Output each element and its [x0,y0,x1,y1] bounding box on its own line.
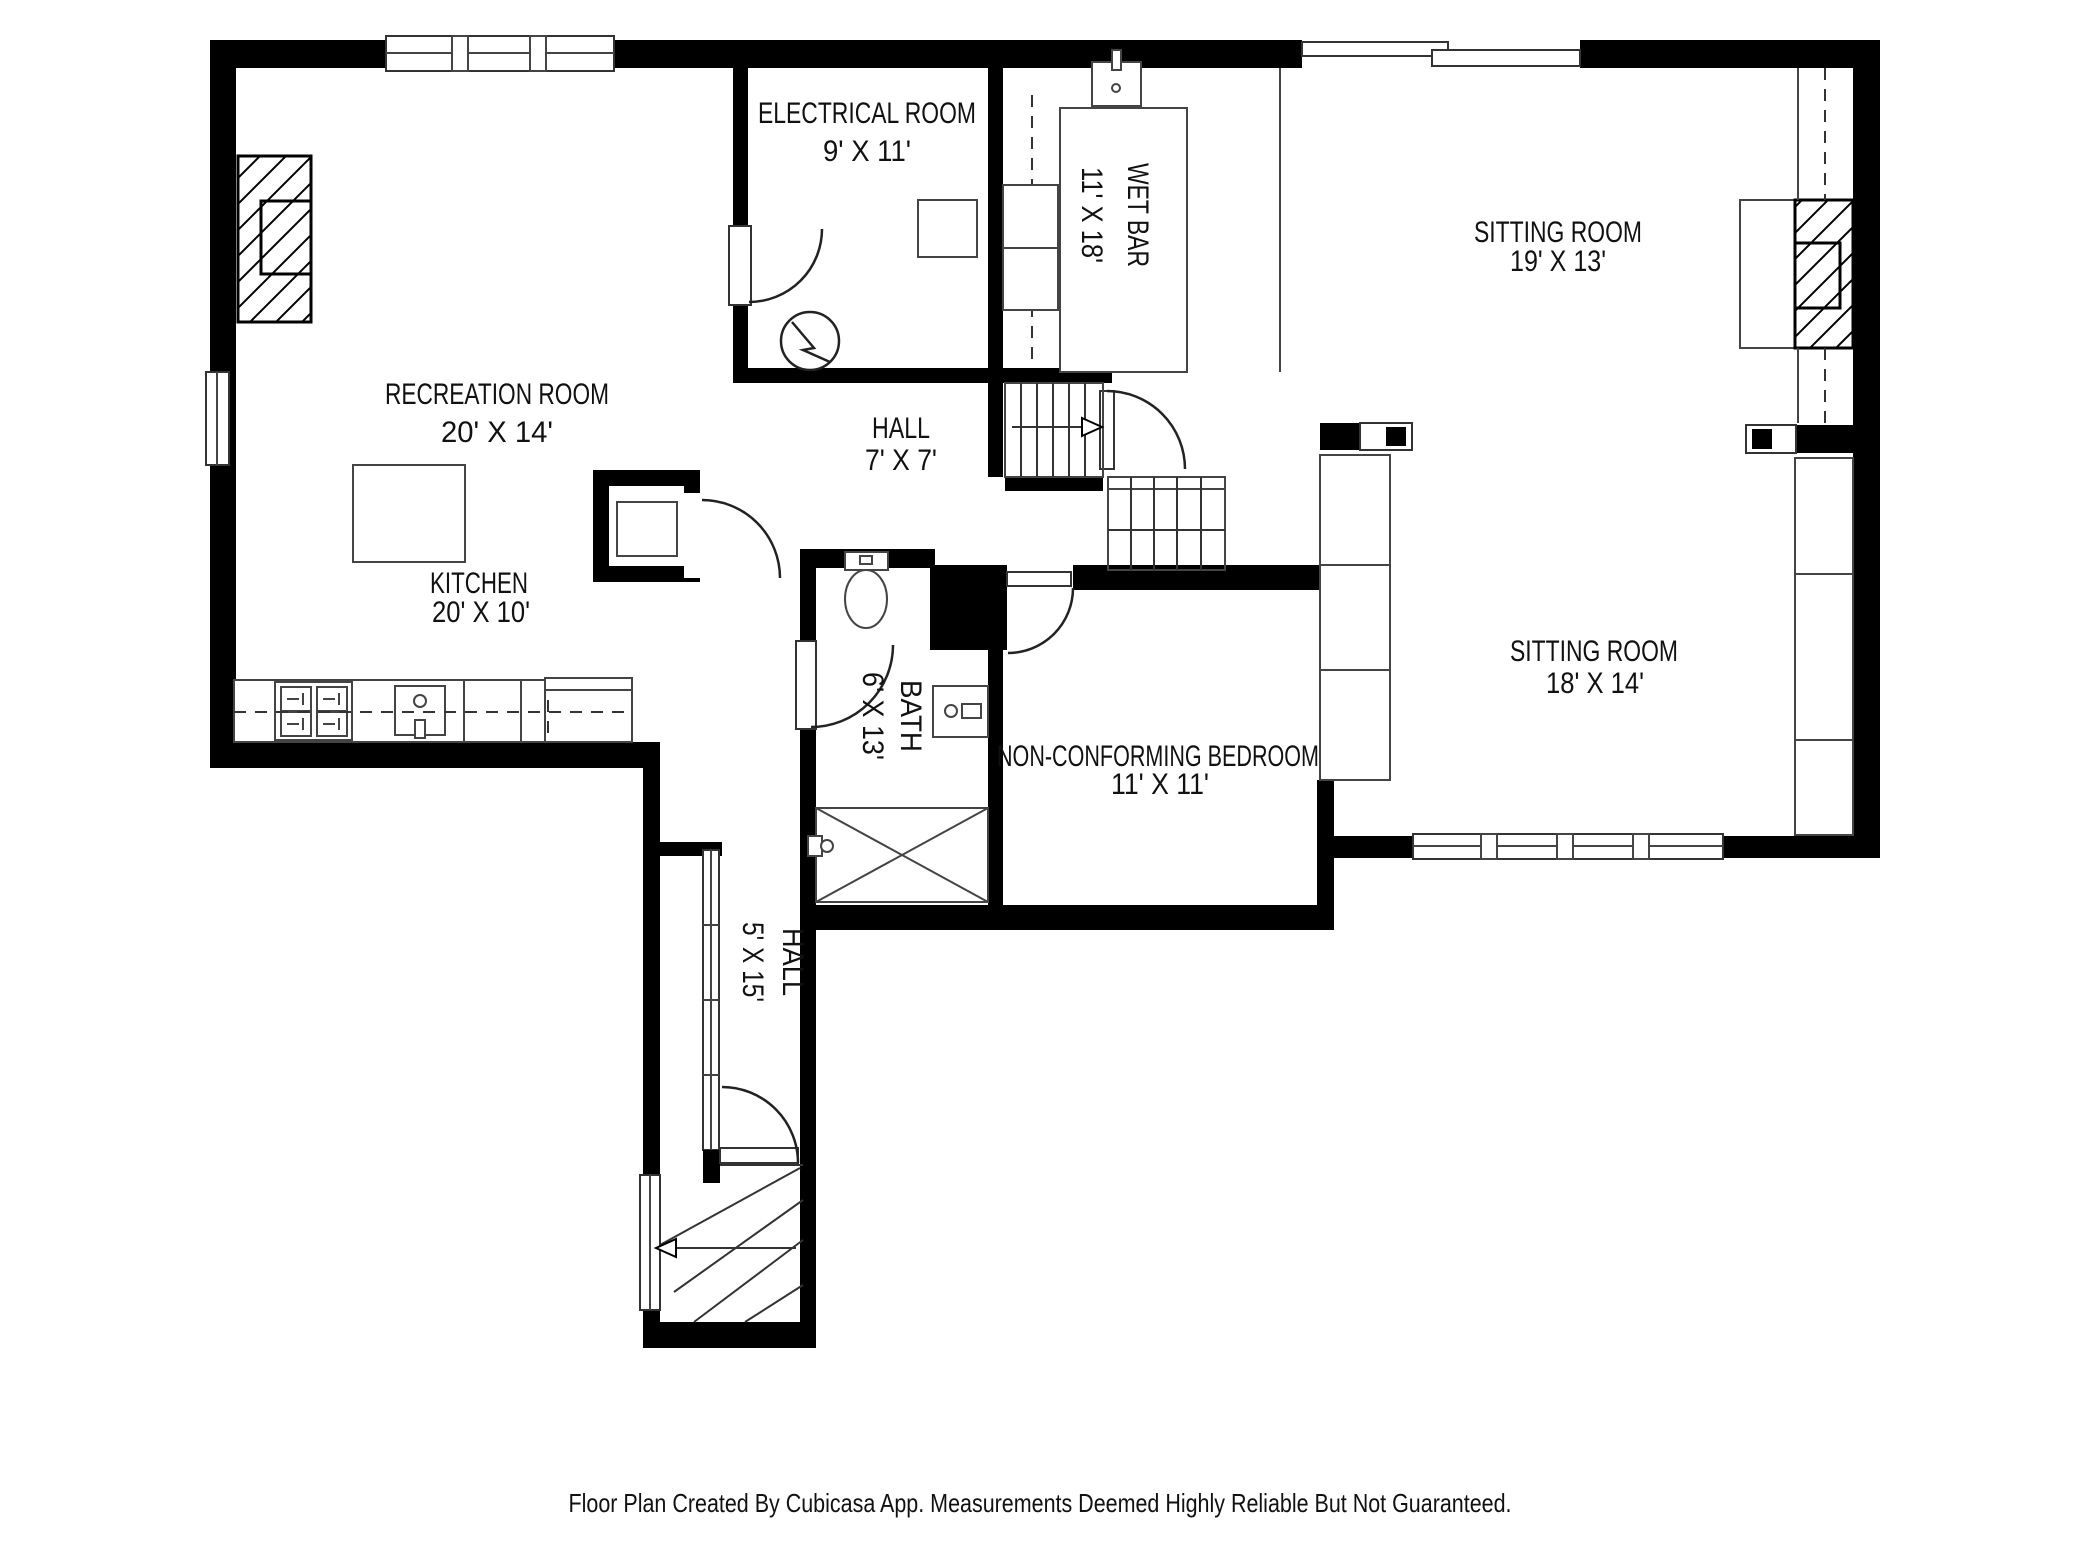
window-top-opening-b [1432,50,1580,66]
caption: Floor Plan Created By Cubicasa App. Meas… [569,1488,1512,1518]
wall-bedroom-right-lower [1317,780,1334,930]
wall-stub-between-sitting-right [1796,425,1870,453]
stairs-upper [1005,383,1103,477]
door-arc-stairs [1107,391,1185,469]
room-regions [236,68,1853,1150]
wall-stub-between-sitting-left [1320,423,1360,450]
window-left-wall [206,372,229,465]
door-stairs [1100,391,1185,469]
room-region-non-conforming-bedroom [1003,590,1317,905]
window-recreation-top [386,36,614,71]
room-region-sitting-room-lower [1356,453,1853,836]
room-region-hall-lower [719,856,800,1150]
wall-electrical-bottom-stair-top [733,368,1112,383]
wall-marker-left [1360,423,1412,450]
stairs-winder [656,1165,803,1322]
wall-markers [1360,423,1796,453]
window-sitting2-bottom [1413,834,1723,859]
wall-top-right [1580,40,1880,68]
wall-bath-bedroom-bottom [800,905,1334,930]
room-region-electrical-room [748,68,988,368]
room-region-bath [816,568,988,905]
room-region-sitting-room-upper [1280,68,1853,423]
window-stairwell [640,1175,660,1310]
room-region-hall-upper [748,383,1003,565]
wall-marker-right [1746,425,1796,453]
floor-plan-page: RECREATION ROOM 20' X 14' ELECTRICAL ROO… [0,0,2080,1560]
wall-kitchen-bottom [210,742,660,768]
wall-stairwell-bottom [643,1322,816,1348]
window-hall-sliding [703,850,720,1183]
wall-electrical-left [733,40,748,368]
wall-stair-bottom [1005,477,1103,491]
room-region-wet-bar [1003,68,1280,368]
room-region-kitchen [236,440,643,742]
stairs-landing [1108,477,1225,570]
wall-bedroom-left [988,650,1003,905]
floor-plan-svg: RECREATION ROOM 20' X 14' ELECTRICAL ROO… [0,0,2080,1560]
window-top-opening-a [1302,42,1448,56]
